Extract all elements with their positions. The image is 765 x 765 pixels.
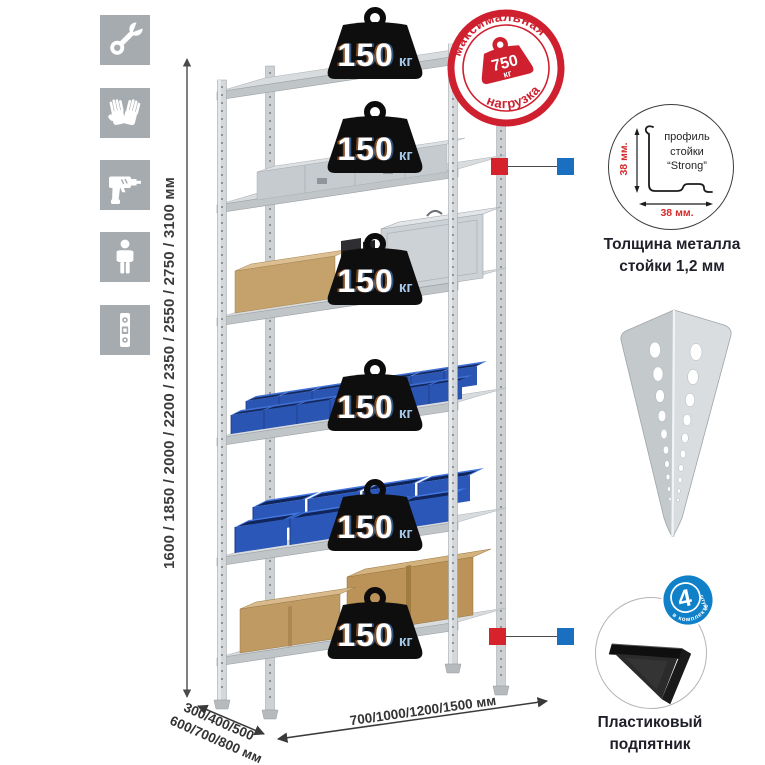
metal-angle-profile [598, 298, 748, 543]
profile-caption: Толщина металла стойки 1,2 мм [592, 234, 752, 277]
connector-blue-square-top [557, 158, 574, 175]
profile-callout-circle: 38 мм. 38 мм. профиль стойки “Strong” [608, 104, 734, 230]
badge-unit: кг [399, 405, 413, 422]
connector-red-square-bottom [489, 628, 506, 645]
rack-upright-front-left [214, 80, 230, 709]
kit-count-badge: 4 штуки в комплекте [655, 567, 721, 633]
drill-icon [100, 160, 150, 210]
connector-blue-square-bottom [557, 628, 574, 645]
spirit-level-icon [100, 305, 150, 355]
badge-unit: кг [399, 525, 413, 542]
profile-label-line1: профиль [653, 130, 721, 145]
shelf-load-badge: 150кг [319, 6, 431, 88]
infographic-canvas: 1600 / 1850 / 2000 / 2200 / 2350 / 2550 … [0, 0, 765, 765]
height-dimension-label: 1600 / 1850 / 2000 / 2200 / 2350 / 2550 … [157, 43, 183, 703]
badge-value: 150 [337, 509, 393, 546]
badge-unit: кг [399, 147, 413, 164]
foot-caption: Пластиковый подпятник [570, 712, 730, 755]
foot-caption-line2: подпятник [570, 734, 730, 756]
badge-value: 150 [337, 263, 393, 300]
connector-line-bottom [498, 636, 566, 637]
connector-red-square-top [491, 158, 508, 175]
badge-unit: кг [399, 633, 413, 650]
badge-value: 150 [337, 617, 393, 654]
profile-dim-horizontal: 38 мм. [647, 207, 707, 219]
badge-unit: кг [399, 279, 413, 296]
rack-upright-rear-right [493, 60, 509, 695]
profile-label-line3: “Strong” [653, 159, 721, 174]
profile-label: профиль стойки “Strong” [653, 130, 721, 174]
shelf-load-badge: 150кг [319, 232, 431, 314]
shelf-load-badge: 150кг [319, 358, 431, 440]
gloves-icon [100, 88, 150, 138]
profile-dim-vertical: 38 мм. [618, 137, 630, 181]
shelf-load-badge: 150кг [319, 478, 431, 560]
profile-caption-line1: Толщина металла [592, 234, 752, 256]
foot-caption-line1: Пластиковый [570, 712, 730, 734]
badge-value: 150 [337, 131, 393, 168]
profile-caption-line2: стойки 1,2 мм [592, 256, 752, 278]
profile-label-line2: стойки [653, 145, 721, 160]
shelf-load-badge: 150кг [319, 100, 431, 182]
badge-value: 150 [337, 389, 393, 426]
person-icon [100, 232, 150, 282]
badge-unit: кг [399, 53, 413, 70]
shelf-load-badge: 150кг [319, 586, 431, 668]
wrench-icon [100, 15, 150, 65]
badge-value: 150 [337, 37, 393, 74]
